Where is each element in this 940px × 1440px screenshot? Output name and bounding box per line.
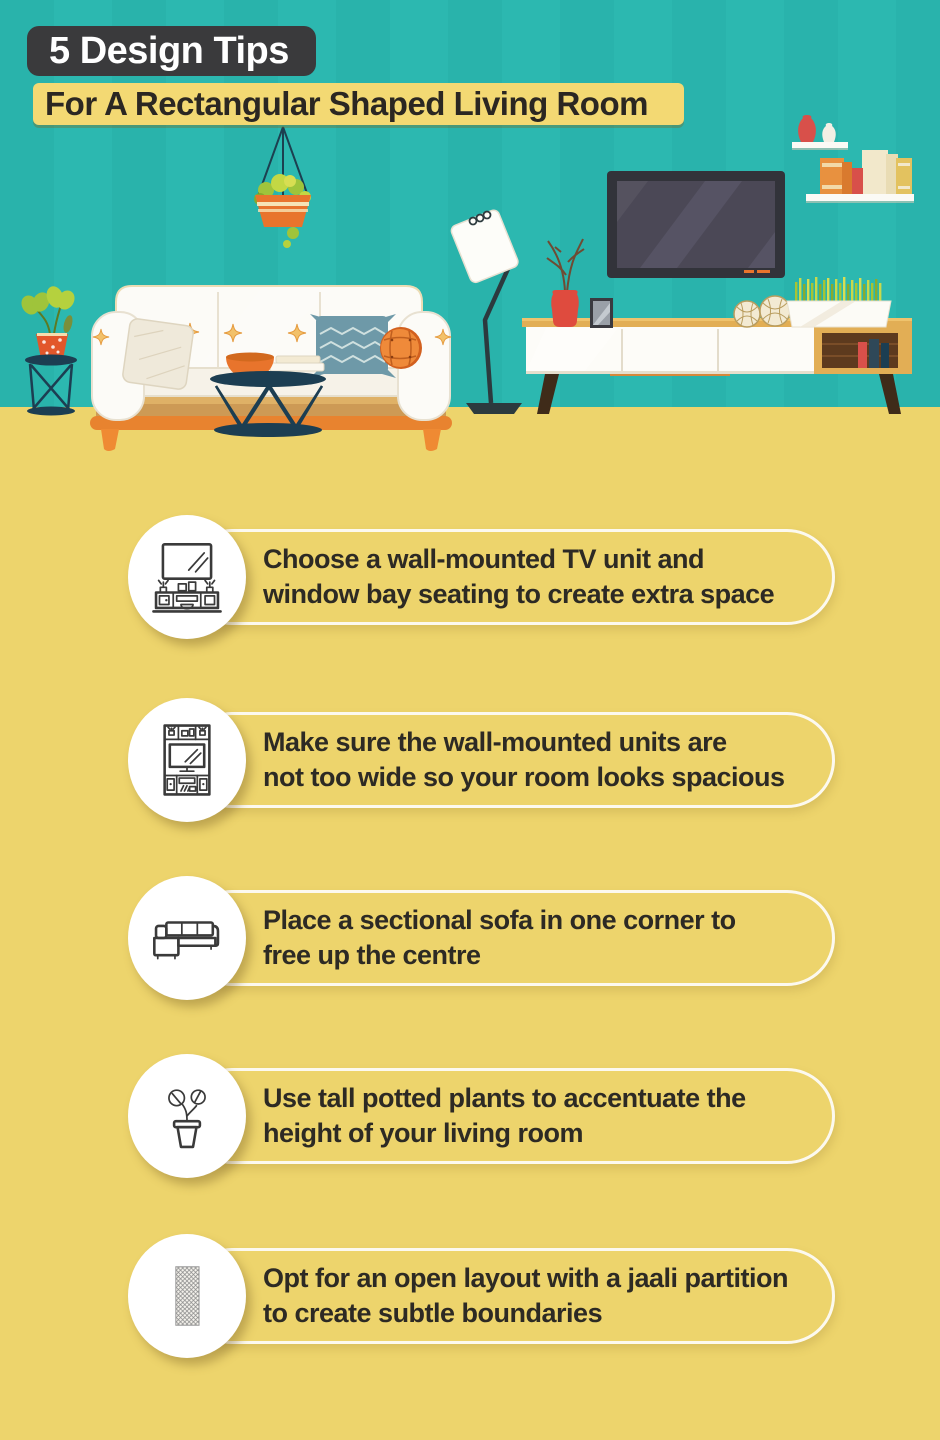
tip-row-1: Choose a wall-mounted TV unit and window… xyxy=(0,515,940,645)
photo-frame xyxy=(590,298,613,328)
tip-row-4: Use tall potted plants to accentuate the… xyxy=(0,1054,940,1184)
round-cushion xyxy=(380,327,422,369)
tip-4-text-line1: Use tall potted plants to accentuate the xyxy=(263,1081,820,1116)
potted-plant-icon xyxy=(144,1073,230,1159)
tip-5-text-line1: Opt for an open layout with a jaali part… xyxy=(263,1261,820,1296)
tip-2-badge xyxy=(128,698,246,822)
tip-row-5: Opt for an open layout with a jaali part… xyxy=(0,1234,940,1364)
tip-2-text-line2: not too wide so your room looks spacious xyxy=(263,760,820,795)
infographic-canvas: 5 Design Tips For A Rectangular Shaped L… xyxy=(0,0,940,1440)
tip-1-text-line1: Choose a wall-mounted TV unit and xyxy=(263,542,820,577)
tip-3-text-line1: Place a sectional sofa in one corner to xyxy=(263,903,820,938)
tip-5-pill: Opt for an open layout with a jaali part… xyxy=(184,1248,835,1344)
tip-4-badge xyxy=(128,1054,246,1178)
tip-5-badge xyxy=(128,1234,246,1358)
wall-mounted-tv-unit-icon xyxy=(144,534,230,620)
sectional-sofa-icon xyxy=(144,895,230,981)
wall-mounted-tv xyxy=(607,171,785,278)
tip-4-text-line2: height of your living room xyxy=(263,1116,820,1151)
wall-unit-icon xyxy=(144,717,230,803)
tip-4-pill: Use tall potted plants to accentuate the… xyxy=(184,1068,835,1164)
jaali-partition-icon xyxy=(144,1253,230,1339)
page-subtitle: For A Rectangular Shaped Living Room xyxy=(33,83,684,125)
tip-1-badge xyxy=(128,515,246,639)
tip-2-text-line1: Make sure the wall-mounted units are xyxy=(263,725,820,760)
tip-3-pill: Place a sectional sofa in one corner to … xyxy=(184,890,835,986)
tip-3-text-line2: free up the centre xyxy=(263,938,820,973)
tip-1-text-line2: window bay seating to create extra space xyxy=(263,577,820,612)
tip-row-3: Place a sectional sofa in one corner to … xyxy=(0,876,940,1006)
tip-3-badge xyxy=(128,876,246,1000)
white-pillow xyxy=(122,318,194,390)
tip-2-pill: Make sure the wall-mounted units are not… xyxy=(184,712,835,808)
tip-1-pill: Choose a wall-mounted TV unit and window… xyxy=(184,529,835,625)
tip-5-text-line2: to create subtle boundaries xyxy=(263,1296,820,1331)
page-title: 5 Design Tips xyxy=(27,26,316,76)
tip-row-2: Make sure the wall-mounted units are not… xyxy=(0,698,940,828)
